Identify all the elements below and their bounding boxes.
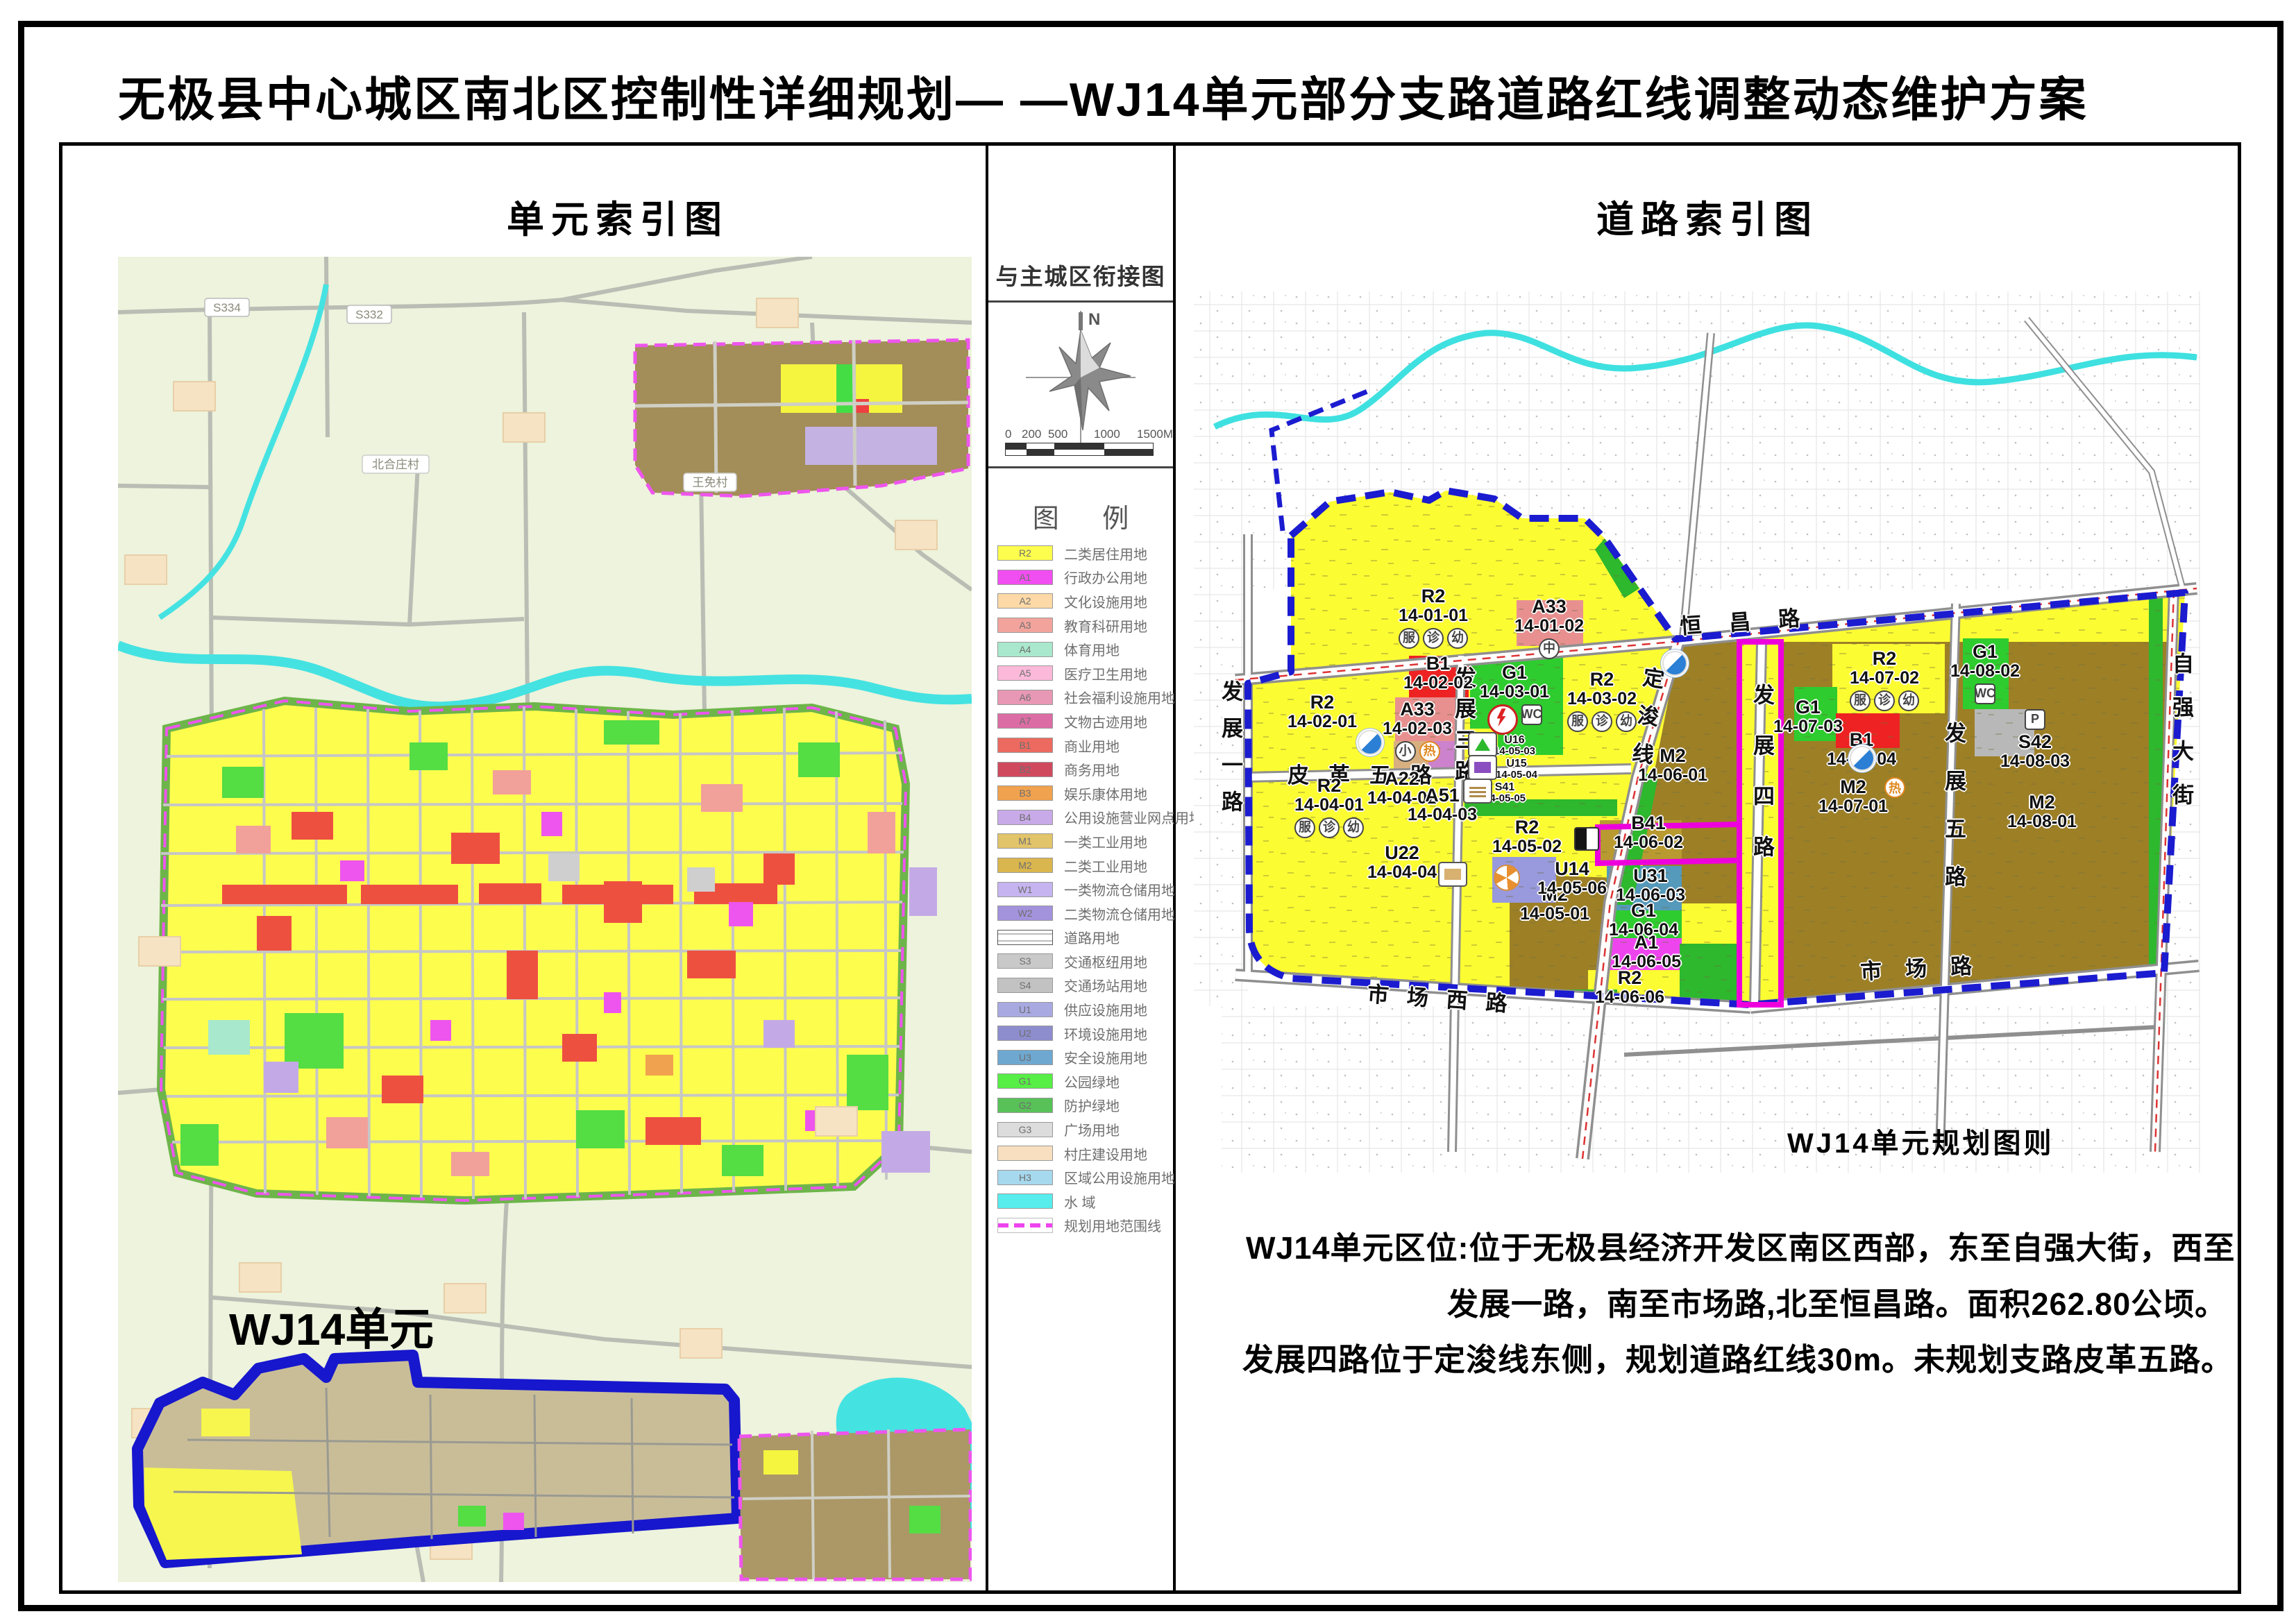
- legend-item: B2 商务用地: [997, 757, 1171, 781]
- parcel-label: R214-04-01 服诊幼: [1294, 776, 1364, 838]
- legend-item: A2 文化设施用地: [997, 589, 1171, 613]
- legend-item: 道路用地: [997, 926, 1171, 950]
- left-map-title: 单元索引图: [389, 189, 847, 244]
- legend-item: A1 行政办公用地: [997, 566, 1171, 590]
- parcel-label: M214-07-01: [1818, 777, 1888, 816]
- compass-graphic: N: [1022, 307, 1140, 445]
- legend-swatch: A5: [997, 665, 1053, 681]
- water-utility-icon: [1850, 746, 1875, 771]
- industrial-zone-south: [739, 1429, 970, 1579]
- legend-swatch: G2: [997, 1098, 1053, 1113]
- parcel-label: U1614-05-03: [1494, 734, 1535, 757]
- legend-item: R2 二类居住用地: [997, 541, 1171, 566]
- legend-item: S4 交通场站用地: [997, 974, 1171, 998]
- parcel-label: A114-06-05: [1612, 933, 1681, 971]
- legend-label: 一类工业用地: [1064, 831, 1147, 851]
- scale-bar-top: [1005, 443, 1154, 450]
- legend-code: A1: [1019, 572, 1031, 583]
- parcel-label: A3314-01-02 中: [1514, 597, 1584, 659]
- legend-code: U2: [1019, 1028, 1031, 1039]
- legend-label: 一类物流仓储用地: [1064, 879, 1175, 899]
- legend-swatch: B3: [997, 785, 1053, 801]
- legend-label: 娱乐康体用地: [1064, 783, 1147, 804]
- legend-label: 商业用地: [1064, 736, 1120, 756]
- scale-tick: 1500M: [1137, 427, 1173, 441]
- u16-broadcast-icon: [1468, 732, 1497, 757]
- legend-label: 教育科研用地: [1064, 615, 1147, 636]
- parcel-label: R214-03-02 服诊幼: [1567, 670, 1637, 732]
- legend-label: 道路用地: [1064, 927, 1120, 947]
- road-index-map: 恒昌路 发展一路 皮革五路 发展三路 定浚线 发展四路 发展五路 自强大街 市场…: [1194, 291, 2200, 1193]
- legend-code: G3: [1019, 1124, 1032, 1135]
- legend-label: 文化设施用地: [1064, 591, 1147, 611]
- legend-code: A5: [1019, 668, 1031, 679]
- parcel-label: B114-02-02: [1403, 654, 1473, 692]
- legend-swatch: A3: [997, 618, 1053, 633]
- legend-item: A4 体育用地: [997, 637, 1171, 661]
- legend-code: B2: [1019, 764, 1031, 775]
- scale-tick-labels: 0 200 500 1000 1500M: [1005, 427, 1165, 443]
- legend-code: W2: [1018, 908, 1033, 919]
- legend-label: 二类物流仓储用地: [1064, 903, 1175, 924]
- industrial-zone-north: [635, 340, 968, 496]
- legend-item: B3 娱乐康体用地: [997, 781, 1171, 806]
- legend-code: A3: [1019, 620, 1031, 631]
- parcel-label: G114-08-02 WC: [1950, 642, 2020, 704]
- parcel-label: U1414-05-06: [1537, 859, 1607, 898]
- scale-tick: 500: [1048, 427, 1067, 441]
- parcel-label: G114-03-01 WC: [1480, 663, 1549, 735]
- note-line-3: 发展四路位于定浚线东侧，规划道路红线30m。未规划支路皮革五路。: [1242, 1334, 2233, 1379]
- road-tag: S332: [355, 308, 383, 321]
- parcel-label: R214-01-01 服诊幼: [1399, 586, 1468, 649]
- legend-item: 村庄建设用地: [997, 1141, 1171, 1166]
- right-map-caption: WJ14单元规划图则: [1787, 1121, 2054, 1161]
- legend-swatch: [997, 1193, 1053, 1209]
- legend-code: R2: [1019, 547, 1031, 559]
- legend-swatch: M2: [997, 858, 1053, 873]
- legend-label: 安全设施用地: [1064, 1047, 1147, 1067]
- note-line-1: WJ14单元区位:位于无极县经济开发区南区西部，东至自强大街，西至: [1246, 1223, 2236, 1268]
- legend-label: 公园绿地: [1064, 1071, 1120, 1091]
- legend-label: 交通场站用地: [1064, 975, 1147, 995]
- u22-sanitation-icon: [1438, 862, 1467, 887]
- scale-tick: 200: [1022, 427, 1041, 441]
- legend-swatch: H3: [997, 1170, 1053, 1185]
- legend-swatch: B2: [997, 762, 1053, 777]
- legend-item: U1 供应设施用地: [997, 997, 1171, 1021]
- legend-label: 规划用地范围线: [1064, 1215, 1161, 1235]
- note-line-2: 发展一路，南至市场路,北至恒昌路。面积262.80公顷。: [1447, 1279, 2227, 1324]
- parcel-label: U2214-04-04: [1367, 843, 1437, 882]
- scale-bar-bottom: [1005, 450, 1154, 456]
- legend-swatch: [997, 1218, 1053, 1233]
- legend-swatch: B4: [997, 810, 1053, 825]
- legend-swatch: A1: [997, 570, 1053, 585]
- legend-item: G2 防护绿地: [997, 1094, 1171, 1118]
- water-utility-icon: [1358, 730, 1383, 755]
- legend-code: G1: [1019, 1076, 1032, 1087]
- legend-label: 交通枢纽用地: [1064, 951, 1147, 971]
- legend-item: M1 一类工业用地: [997, 829, 1171, 853]
- parcel-label: M214-08-01: [2007, 792, 2077, 831]
- legend-code: M2: [1018, 860, 1031, 871]
- parcel-label: R214-02-01: [1288, 692, 1357, 731]
- legend-code: U1: [1019, 1004, 1031, 1015]
- legend-code: S4: [1019, 980, 1031, 991]
- inset-map-title: 与主城区衔接图: [988, 258, 1173, 291]
- legend-swatch: A6: [997, 690, 1053, 705]
- parcel-label: P S4214-08-03: [2000, 709, 2070, 771]
- s41-parking-icon: [1463, 779, 1492, 804]
- parcel-label: R214-07-02 服诊幼: [1850, 649, 1919, 711]
- legend-swatch: G3: [997, 1122, 1053, 1137]
- legend-code: A4: [1019, 644, 1031, 655]
- u15-postal-icon: [1468, 755, 1497, 780]
- village-label: 王免村: [693, 476, 728, 489]
- legend-item: U3 安全设施用地: [997, 1045, 1171, 1069]
- legend-item: M2 二类工业用地: [997, 853, 1171, 878]
- legend-code: A7: [1019, 715, 1031, 726]
- compass-north-label: N: [1088, 310, 1100, 329]
- legend-item: B1 商业用地: [997, 733, 1171, 758]
- legend-label: 防护绿地: [1064, 1095, 1120, 1115]
- legend-swatch: A7: [997, 713, 1053, 729]
- page-title: 无极县中心城区南北区控制性详细规划— —WJ14单元部分支路道路红线调整动态维护…: [118, 61, 2088, 130]
- legend-code: G2: [1019, 1100, 1032, 1111]
- legend-swatch: S4: [997, 978, 1053, 993]
- divider-right: [1173, 142, 1176, 1590]
- road-label-fazhan1: 发展一路: [1215, 680, 1246, 827]
- windrose-star: [1049, 330, 1131, 430]
- legend-label: 二类居住用地: [1064, 543, 1147, 563]
- legend-code: B4: [1019, 812, 1031, 823]
- parcel-label: A3314-02-03 小热: [1383, 699, 1452, 762]
- legend-swatch: A4: [997, 642, 1053, 657]
- rule-under-inset-title: [988, 300, 1173, 303]
- parcel-label: B4114-06-02: [1614, 813, 1683, 852]
- parcel-label: M214-06-01: [1638, 746, 1707, 785]
- legend-code: A6: [1019, 692, 1031, 703]
- scale-bar: 0 200 500 1000 1500M: [1005, 427, 1165, 456]
- village-label: 北合庄村: [372, 458, 419, 471]
- legend-label: 文物古迹用地: [1064, 711, 1147, 731]
- power-icon: [1487, 704, 1517, 735]
- legend-code: S3: [1019, 955, 1031, 967]
- road-label-fazhan5: 发展五路: [1938, 722, 1969, 913]
- legend-label: 二类工业用地: [1064, 856, 1147, 876]
- legend-swatch: W2: [997, 906, 1053, 921]
- legend-label: 广场用地: [1064, 1119, 1120, 1139]
- legend-label: 村庄建设用地: [1064, 1144, 1147, 1164]
- legend-label: 体育用地: [1064, 639, 1120, 659]
- legend-swatch: S3: [997, 953, 1053, 969]
- legend-label: 区域公用设施用地: [1064, 1167, 1175, 1187]
- legend-label: 公用设施营业网点用地: [1064, 807, 1203, 827]
- heat-badge: 热: [1884, 777, 1905, 798]
- legend-item: A3 教育科研用地: [997, 613, 1171, 638]
- legend-swatch: M1: [997, 833, 1053, 849]
- scale-tick: 1000: [1094, 427, 1120, 441]
- legend-label: 水 域: [1064, 1191, 1096, 1212]
- rule-under-scale: [988, 466, 1173, 468]
- legend-item: S3 交通枢纽用地: [997, 949, 1171, 974]
- legend-item: A5 医疗卫生用地: [997, 661, 1171, 686]
- legend-code: M1: [1018, 835, 1031, 847]
- legend-item: 规划用地范围线: [997, 1214, 1171, 1238]
- legend-swatch: U1: [997, 1002, 1053, 1017]
- wj14-unit-label: WJ14单元: [229, 1305, 434, 1354]
- legend-code: B3: [1019, 788, 1031, 799]
- b41-utility-outlet-icon: [1574, 827, 1599, 851]
- parcel-label: U1514-05-04: [1496, 758, 1537, 781]
- legend-swatch: U3: [997, 1050, 1053, 1065]
- legend: R2 二类居住用地 A1 行政办公用地 A2 文化设施用地 A3 教育科研用地 …: [997, 541, 1171, 1237]
- water-utility-icon: [1662, 651, 1687, 676]
- legend-swatch: [997, 930, 1053, 945]
- legend-item: G3 广场用地: [997, 1117, 1171, 1141]
- parcel-label: R214-05-02: [1492, 817, 1562, 856]
- legend-label: 医疗卫生用地: [1064, 663, 1147, 683]
- road-tag: S334: [213, 301, 241, 314]
- legend-swatch: U2: [997, 1026, 1053, 1041]
- legend-label: 环境设施用地: [1064, 1023, 1147, 1044]
- legend-code: U3: [1019, 1052, 1031, 1063]
- parcel-label: U3114-06-03: [1616, 866, 1685, 905]
- legend-code: W1: [1018, 884, 1033, 895]
- right-map-title: 道路索引图: [1478, 189, 1936, 244]
- legend-item: A7 文物古迹用地: [997, 709, 1171, 733]
- parcel-label: R214-06-06: [1595, 968, 1664, 1007]
- legend-swatch: W1: [997, 882, 1053, 897]
- legend-swatch: [997, 1146, 1053, 1161]
- legend-item: H3 区域公用设施用地: [997, 1165, 1171, 1189]
- legend-item: A6 社会福利设施用地: [997, 686, 1171, 710]
- legend-label: 社会福利设施用地: [1064, 687, 1175, 707]
- legend-swatch: G1: [997, 1073, 1053, 1089]
- road-label-ziqiang: 自强大街: [2166, 652, 2197, 827]
- legend-item: B4 公用设施营业网点用地: [997, 806, 1171, 830]
- legend-code: A2: [1019, 595, 1031, 606]
- legend-title: 图 例: [988, 497, 1173, 535]
- legend-code: B1: [1019, 740, 1031, 751]
- legend-label: 供应设施用地: [1064, 999, 1147, 1019]
- legend-swatch: A2: [997, 593, 1053, 609]
- legend-code: H3: [1019, 1172, 1031, 1183]
- legend-swatch: B1: [997, 738, 1053, 753]
- legend-label: 行政办公用地: [1064, 567, 1147, 587]
- legend-item: W1 一类物流仓储用地: [997, 877, 1171, 901]
- unit-index-map-graphic: S334 S332 北合庄村 王免村 WJ14单元: [118, 257, 972, 1582]
- legend-item: U2 环境设施用地: [997, 1021, 1171, 1046]
- legend-swatch: R2: [997, 545, 1053, 561]
- legend-item: G1 公园绿地: [997, 1069, 1171, 1094]
- divider-left: [986, 142, 988, 1590]
- legend-item: 水 域: [997, 1189, 1171, 1214]
- scale-tick: 0: [1005, 427, 1011, 441]
- legend-label: 商务用地: [1064, 759, 1120, 779]
- unit-index-map: S334 S332 北合庄村 王免村 WJ14单元: [118, 257, 972, 1582]
- u14-heat-supply-icon: [1494, 865, 1520, 891]
- legend-item: W2 二类物流仓储用地: [997, 901, 1171, 926]
- plan-sheet: 无极县中心城区南北区控制性详细规划— —WJ14单元部分支路道路红线调整动态维护…: [0, 0, 2296, 1623]
